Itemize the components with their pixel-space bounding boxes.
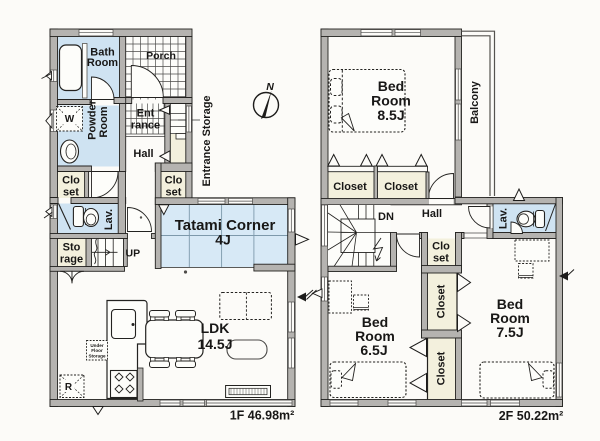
svg-text:rance: rance <box>131 120 160 132</box>
svg-text:8.5J: 8.5J <box>377 107 404 123</box>
svg-text:Closet: Closet <box>333 181 367 193</box>
svg-text:14.5J: 14.5J <box>197 336 232 352</box>
svg-text:Balcony: Balcony <box>469 80 481 124</box>
svg-text:set: set <box>63 187 79 199</box>
svg-text:Closet: Closet <box>384 181 418 193</box>
svg-text:R: R <box>65 382 73 393</box>
svg-text:LDK: LDK <box>201 320 230 336</box>
svg-text:Sto: Sto <box>63 242 81 254</box>
svg-text:Room: Room <box>87 57 118 69</box>
svg-text:set: set <box>166 187 182 199</box>
svg-text:Entrance Storage: Entrance Storage <box>201 95 213 186</box>
svg-text:1F 46.98m²: 1F 46.98m² <box>230 409 295 423</box>
svg-text:N: N <box>266 81 274 93</box>
svg-text:Hall: Hall <box>422 208 442 220</box>
svg-text:6.5J: 6.5J <box>360 342 387 358</box>
svg-text:Powder: Powder <box>87 99 99 139</box>
svg-text:2F 50.22m²: 2F 50.22m² <box>499 409 564 423</box>
svg-text:rage: rage <box>60 254 83 266</box>
svg-text:Lav.: Lav. <box>103 209 115 230</box>
svg-text:Clo: Clo <box>165 175 183 187</box>
svg-text:Lav.: Lav. <box>498 208 510 229</box>
svg-text:Porch: Porch <box>146 50 176 62</box>
svg-text:4J: 4J <box>215 232 231 248</box>
svg-text:7.5J: 7.5J <box>496 324 523 340</box>
svg-text:Clo: Clo <box>432 241 450 253</box>
svg-text:set: set <box>433 253 449 265</box>
svg-text:DN: DN <box>378 211 394 223</box>
svg-text:Closet: Closet <box>436 351 448 385</box>
svg-text:Ent: Ent <box>137 108 155 120</box>
svg-text:Clo: Clo <box>62 175 80 187</box>
svg-text:Storage: Storage <box>88 353 106 358</box>
svg-text:Closet: Closet <box>436 284 448 318</box>
svg-text:Hall: Hall <box>133 148 153 160</box>
svg-text:UP: UP <box>126 248 141 260</box>
svg-text:Room: Room <box>98 106 110 137</box>
svg-text:W: W <box>65 114 75 125</box>
